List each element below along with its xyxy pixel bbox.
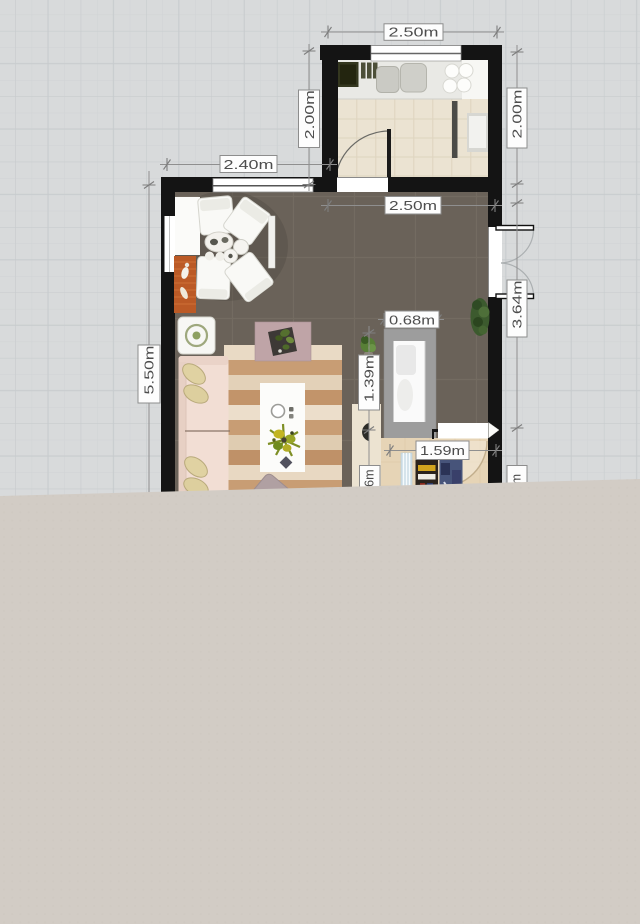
- svg-text:2.50m: 2.50m: [389, 26, 439, 40]
- svg-text:2.00m: 2.00m: [510, 90, 524, 139]
- svg-text:2.40m: 2.40m: [224, 158, 274, 172]
- svg-text:3.64m: 3.64m: [510, 281, 524, 329]
- svg-text:2.50m: 2.50m: [389, 199, 437, 213]
- svg-text:0.68m: 0.68m: [389, 314, 435, 328]
- svg-text:2.00m: 2.00m: [303, 90, 317, 139]
- svg-text:5.50m: 5.50m: [142, 346, 156, 395]
- svg-text:1.39m: 1.39m: [362, 355, 376, 402]
- svg-text:1.59m: 1.59m: [420, 444, 465, 458]
